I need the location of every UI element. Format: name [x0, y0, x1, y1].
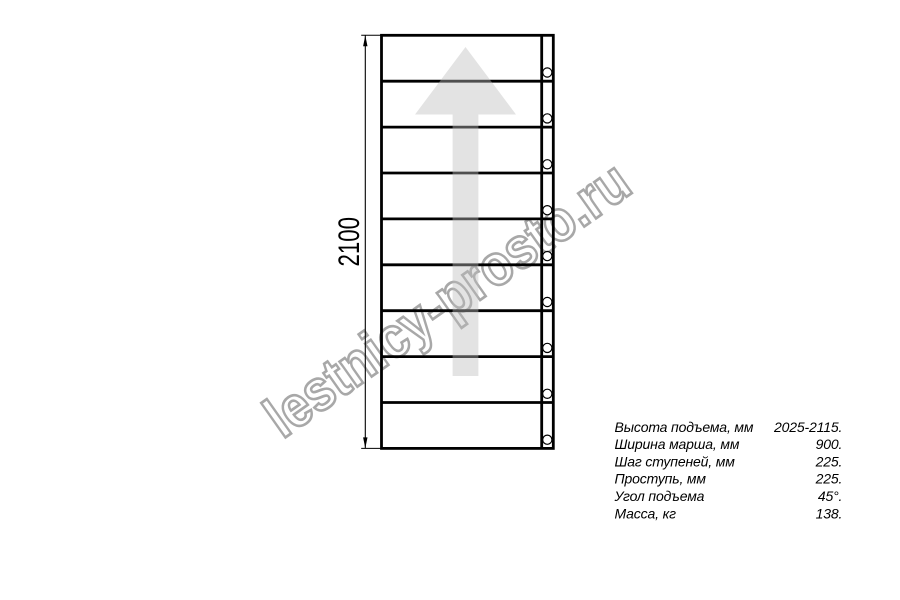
svg-text:225.: 225.: [815, 471, 843, 487]
svg-text:2100: 2100: [333, 217, 366, 267]
svg-text:Ширина марша, мм: Ширина марша, мм: [615, 436, 740, 452]
svg-text:45°.: 45°.: [818, 488, 842, 504]
svg-text:Высота подъема, мм: Высота подъема, мм: [615, 419, 754, 435]
svg-text:Масса, кг: Масса, кг: [615, 505, 677, 521]
svg-text:225.: 225.: [815, 453, 843, 469]
svg-text:lestnicy-prosto.ru: lestnicy-prosto.ru: [253, 149, 643, 451]
svg-text:900.: 900.: [816, 436, 843, 452]
svg-text:Шаг ступеней, мм: Шаг ступеней, мм: [615, 453, 736, 469]
svg-text:Проступь, мм: Проступь, мм: [615, 471, 707, 487]
svg-text:2025-2115.: 2025-2115.: [773, 419, 842, 435]
svg-text:138.: 138.: [816, 505, 843, 521]
svg-text:Угол подъема: Угол подъема: [614, 488, 705, 504]
